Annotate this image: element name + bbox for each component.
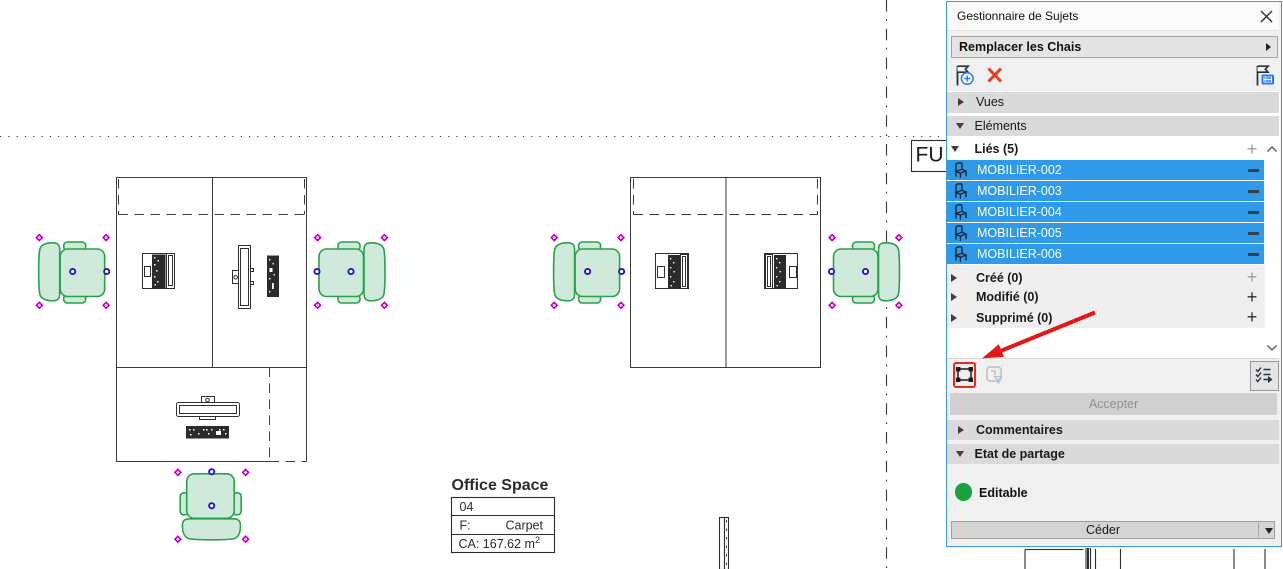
svg-text:04: 04 <box>460 500 474 514</box>
svg-text:2: 2 <box>535 535 540 545</box>
svg-text:FU: FU <box>916 144 944 167</box>
svg-text:Carpet: Carpet <box>505 519 543 533</box>
svg-text:Office Space: Office Space <box>452 477 549 494</box>
svg-text:F:: F: <box>460 519 471 533</box>
svg-text:CA: 167.62 m: CA: 167.62 m <box>459 537 535 551</box>
